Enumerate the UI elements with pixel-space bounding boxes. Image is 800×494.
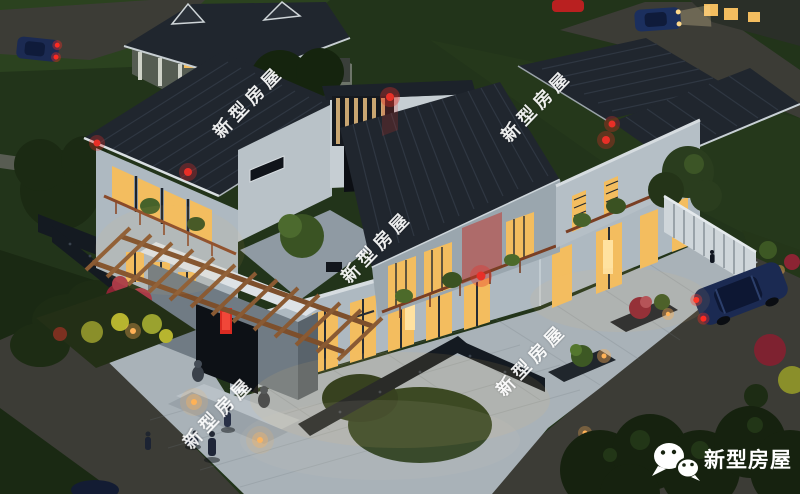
scene-canvas: 新型房屋 新型房屋 新型房屋 新型房屋 新型房屋 新型房屋 bbox=[0, 0, 800, 494]
brand-logo-text: 新型房屋 bbox=[704, 448, 792, 472]
night-villa-rendering: 新型房屋 新型房屋 新型房屋 新型房屋 新型房屋 新型房屋 bbox=[0, 0, 800, 494]
red-car-partial bbox=[552, 0, 584, 12]
